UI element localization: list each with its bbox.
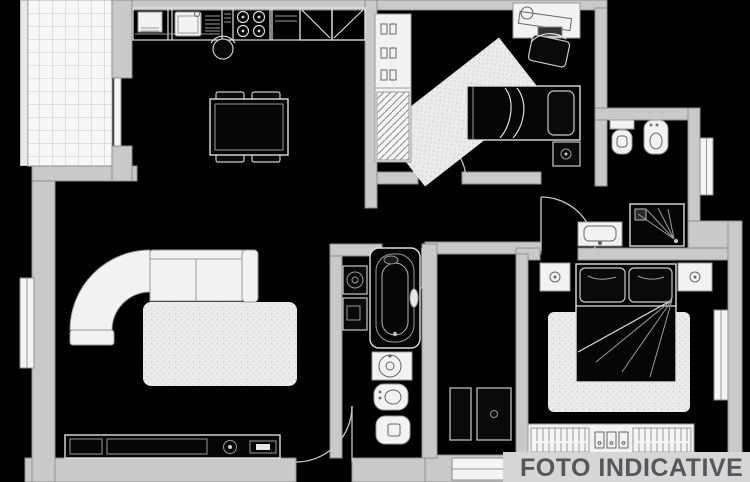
watermark-text: FOTO INDICATIVE <box>520 454 743 482</box>
wall-segment <box>352 458 425 482</box>
bidet-icon <box>644 120 668 154</box>
wall-segment <box>462 172 541 184</box>
pillow <box>580 268 625 302</box>
washing-machine-icon <box>343 266 367 294</box>
wall-segment <box>330 244 342 458</box>
nightstand <box>540 263 570 291</box>
tv-cabinet <box>65 435 280 458</box>
hall-cabinet <box>450 388 511 440</box>
wall-segment <box>112 0 132 78</box>
wall-segment <box>422 244 437 458</box>
washbasin-icon <box>578 222 622 246</box>
balcony-tiles <box>28 0 112 166</box>
wall-segment <box>516 254 528 458</box>
window <box>700 138 713 195</box>
toilet-icon <box>610 120 634 154</box>
wall-segment <box>32 166 55 482</box>
wall-segment <box>25 458 296 482</box>
wall-segment <box>688 108 700 233</box>
watermark: FOTO INDICATIVE <box>503 452 750 482</box>
dining-table <box>210 92 288 162</box>
wall-segment <box>595 108 700 120</box>
living-room-rug <box>143 302 297 386</box>
shower-icon <box>630 204 684 246</box>
wall-segment <box>595 8 607 186</box>
double-bed <box>576 264 676 382</box>
bathtub-icon <box>370 248 420 348</box>
balcony-door <box>114 78 121 146</box>
nightstand <box>678 263 712 291</box>
desk <box>513 3 580 38</box>
round-washbasin-icon <box>372 352 412 380</box>
window <box>714 310 728 400</box>
wall-segment <box>112 146 132 181</box>
balcony-railing <box>21 1 28 166</box>
wall-segment <box>578 248 728 260</box>
wall-segment <box>377 172 418 184</box>
bath-cabinet <box>343 298 367 330</box>
pillow <box>629 268 672 302</box>
bidet-icon <box>374 384 408 410</box>
floor-plan: FOTO INDICATIVE <box>0 0 750 482</box>
toilet-icon <box>376 416 410 444</box>
window <box>20 278 34 368</box>
master-wardrobe <box>528 424 694 455</box>
wall-segment <box>728 221 742 482</box>
nightstand <box>553 142 580 166</box>
wardrobe <box>375 14 411 162</box>
fridge-icon <box>138 12 162 32</box>
pillow <box>548 91 574 135</box>
single-bed <box>467 86 580 140</box>
balcony <box>21 0 113 166</box>
